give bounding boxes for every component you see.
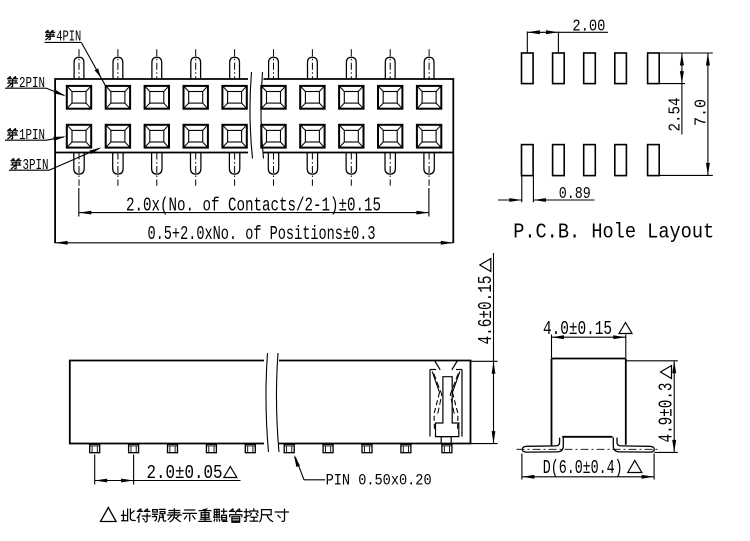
svg-text:2.54: 2.54 — [667, 98, 686, 132]
svg-text:0.5+2.0xNo. of Positions±0.3: 0.5+2.0xNo. of Positions±0.3 — [148, 223, 376, 245]
svg-text:PIN 0.50x0.20: PIN 0.50x0.20 — [326, 472, 432, 490]
svg-text:4.6±0.15: 4.6±0.15 — [475, 276, 497, 345]
svg-text:4.9±0.3: 4.9±0.3 — [656, 383, 678, 443]
svg-text:D(6.0±0.4): D(6.0±0.4) — [543, 457, 623, 479]
svg-text:4.0±0.15: 4.0±0.15 — [543, 318, 612, 340]
svg-text:P.C.B. Hole Layout: P.C.B. Hole Layout — [513, 221, 714, 245]
svg-text:2.00: 2.00 — [572, 18, 605, 37]
svg-text:3PIN: 3PIN — [23, 158, 49, 174]
svg-text:0.89: 0.89 — [559, 185, 591, 204]
svg-text:7.0: 7.0 — [692, 99, 711, 126]
svg-text:1PIN: 1PIN — [19, 128, 45, 144]
svg-text:2PIN: 2PIN — [19, 76, 45, 92]
svg-text:2.0x(No. of Contacts/2-1)±0.: 2.0x(No. of Contacts/2-1)±0.15 — [126, 194, 381, 216]
svg-text:4PIN: 4PIN — [56, 29, 81, 45]
svg-text:2.0±0.05: 2.0±0.05 — [147, 462, 223, 484]
